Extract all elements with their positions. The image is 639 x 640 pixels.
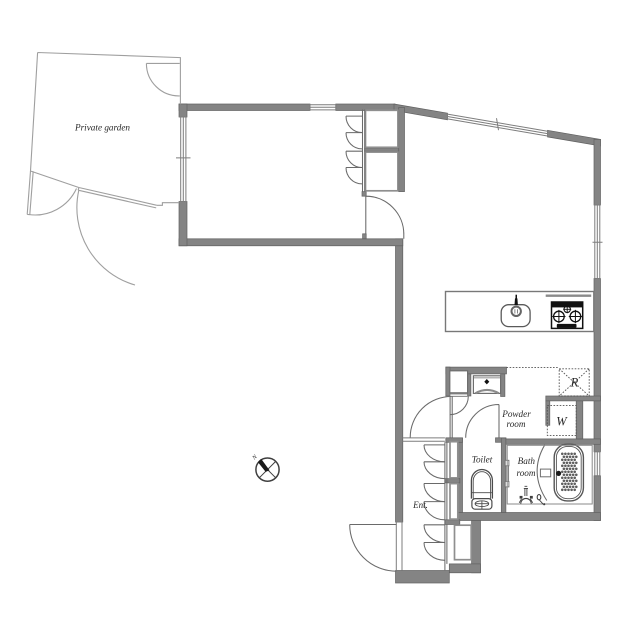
svg-text:W: W [556, 414, 568, 428]
svg-text:Toilet: Toilet [472, 454, 493, 464]
svg-text:Powder: Powder [501, 409, 531, 419]
svg-text:room: room [516, 468, 535, 478]
svg-text:Ent.: Ent. [412, 500, 428, 510]
svg-text:R: R [570, 376, 579, 390]
svg-text:Private garden: Private garden [74, 122, 130, 132]
svg-text:room: room [506, 419, 525, 429]
svg-text:Bath: Bath [518, 456, 536, 466]
